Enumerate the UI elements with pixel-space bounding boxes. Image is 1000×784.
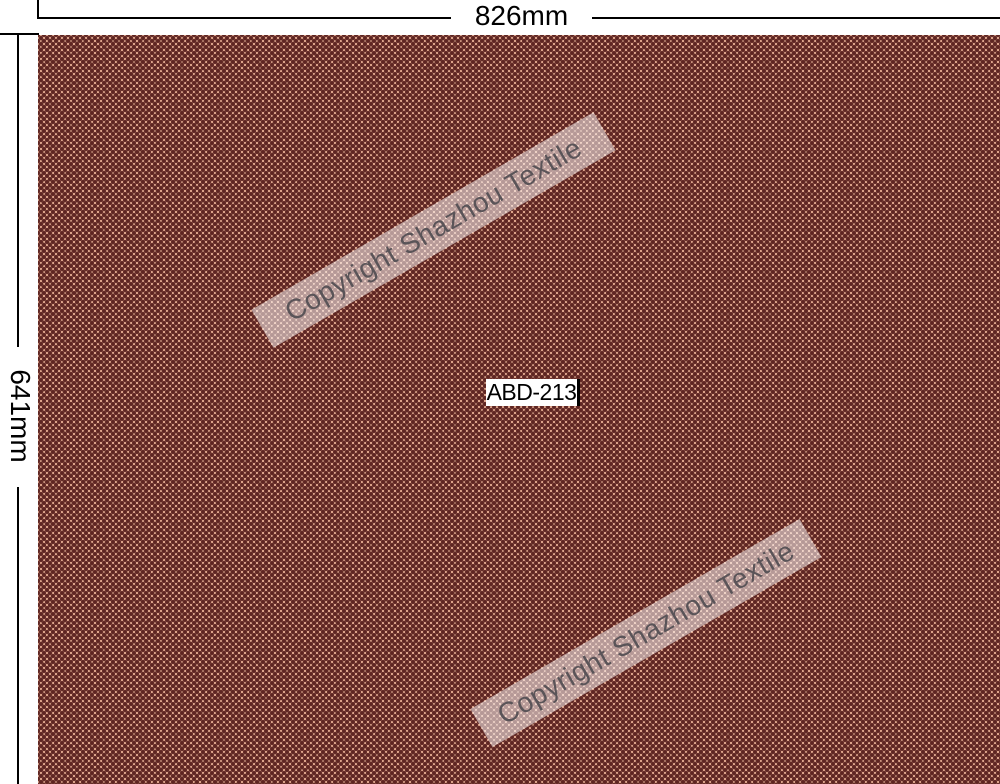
textile-swatch-image: 826mm 641mm Copyright Shazhou Textile Co…: [0, 0, 1000, 784]
width-dimension-line-right: [592, 17, 1000, 19]
height-dimension-label: 641mm: [4, 369, 36, 462]
copyright-watermark-bottom: Copyright Shazhou Textile: [470, 519, 821, 747]
height-dimension-line-bottom: [17, 487, 19, 784]
product-code-label: ABD-213: [486, 379, 580, 406]
copyright-watermark-top: Copyright Shazhou Textile: [251, 112, 615, 348]
product-code-text: ABD-213: [487, 379, 577, 406]
copyright-watermark-text: Copyright Shazhou Textile: [279, 132, 587, 328]
fabric-swatch: Copyright Shazhou Textile Copyright Shaz…: [38, 35, 1000, 784]
width-dimension-label: 826mm: [451, 0, 592, 32]
height-dimension-start-tick: [0, 33, 39, 35]
copyright-watermark-text: Copyright Shazhou Textile: [492, 535, 800, 731]
width-dimension-line-left: [37, 17, 451, 19]
height-dimension-line-top: [17, 33, 19, 347]
